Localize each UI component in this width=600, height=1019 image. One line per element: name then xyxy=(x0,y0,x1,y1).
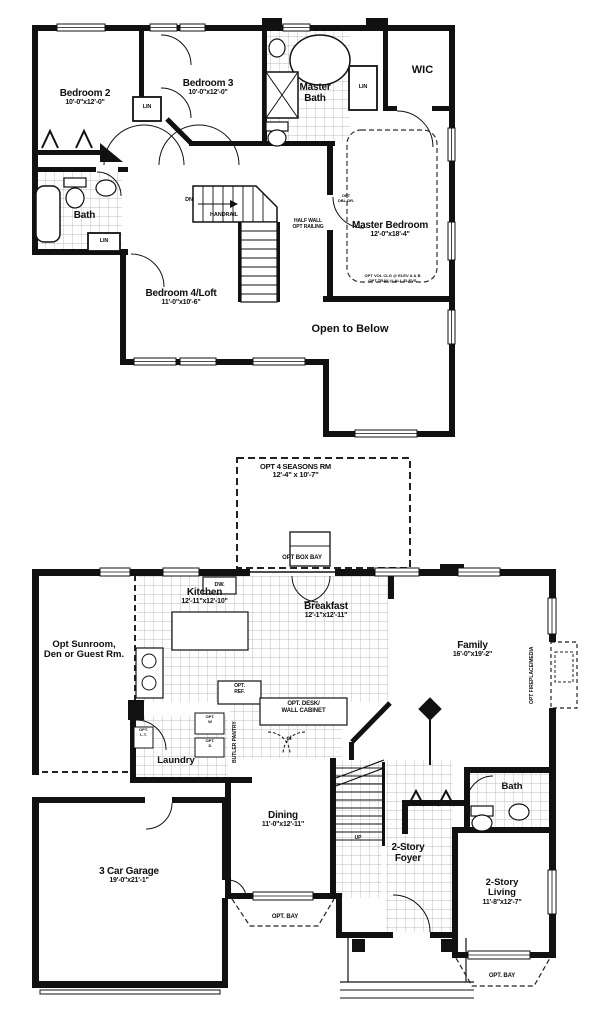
bedroom3-label: Bedroom 3 10'-0"x12'-0" xyxy=(158,78,258,97)
bedroom3-name: Bedroom 3 xyxy=(158,78,258,89)
kitchen-name: Kitchen xyxy=(152,587,257,598)
breakfast-label: Breakfast 12'-1"x12'-11" xyxy=(270,601,382,620)
stairs-up-label: UP xyxy=(350,836,366,842)
opt-washer-line2: W xyxy=(197,720,222,724)
family-name: Family xyxy=(420,640,525,651)
lower-bath-label: Bath xyxy=(492,782,532,792)
bedroom2-label: Bedroom 2 10'-0"x12'-0" xyxy=(35,88,135,107)
linen-closet-label-hall: LIN xyxy=(136,104,158,110)
breakfast-dims: 12'-1"x12'-11" xyxy=(270,612,382,620)
laundry-label: Laundry xyxy=(145,756,207,766)
lower-floor-porch xyxy=(40,938,474,998)
dining-name: Dining xyxy=(233,810,333,821)
floor-plan-page: Bedroom 2 10'-0"x12'-0" Bedroom 3 10'-0"… xyxy=(0,0,600,1019)
opt-desk-wall-cabinet-label: OPT. DESK/ WALL CABINET xyxy=(261,701,346,714)
opt-ref-line2: REF. xyxy=(219,690,260,696)
upper-floor-stairs xyxy=(193,186,277,302)
master-bedroom-dims: 12'-0"x18'-4" xyxy=(330,231,450,239)
opt-4-seasons-dims: 12'-4" x 10'-7" xyxy=(243,471,348,479)
dining-dims: 11'-0"x12'-11" xyxy=(233,821,333,829)
wic-label: WIC xyxy=(400,64,445,76)
ceiling-note-line2: OPT TRAY @ ALL ELEVS xyxy=(350,279,436,283)
bedroom3-dims: 10'-0"x12'-0" xyxy=(158,89,258,97)
opt-washer-label: OPT. W xyxy=(196,715,224,725)
two-story-living-label: 2-Story Living 11'-8"x12'-7" xyxy=(452,878,552,907)
garage-label: 3 Car Garage 19'-0"x21'-1" xyxy=(73,866,185,885)
opt-bay-living-label: OPT. BAY xyxy=(472,973,532,980)
open-to-below-label: Open to Below xyxy=(295,323,405,335)
bedroom4-dims: 11'-0"x10'-6" xyxy=(125,299,237,307)
opt-fireplace-media-label: OPT FIREPLACE/MEDIA xyxy=(530,638,535,712)
master-bedroom-ceiling-note: OPT VOL CLG @ ELEV A & B OPT TRAY @ ALL … xyxy=(345,274,440,284)
opt-4-seasons-label: OPT 4 SEASONS RM 12'-4" x 10'-7" xyxy=(243,463,348,480)
butler-pantry-label: BUTLER PANTRY xyxy=(233,706,238,778)
dining-label: Dining 11'-0"x12'-11" xyxy=(233,810,333,829)
opt-dryer-line2: D xyxy=(197,744,222,748)
kitchen-dims: 12'-11"x12'-10" xyxy=(152,598,257,606)
opt-double-door-label: OPT DBL DR. xyxy=(327,194,365,204)
bedroom2-name: Bedroom 2 xyxy=(35,88,135,99)
half-wall-line2: OPT RAILING xyxy=(282,225,334,231)
opt-desk-line2: WALL CABINET xyxy=(261,708,346,715)
closet-label: cl xyxy=(280,735,298,742)
living-line2: Living xyxy=(452,888,552,898)
family-room-label: Family 16'-0"x19'-2" xyxy=(420,640,525,659)
garage-name: 3 Car Garage xyxy=(73,866,185,877)
bedroom2-dims: 10'-0"x12'-0" xyxy=(35,99,135,107)
linen-closet-label-master-bath: LIN xyxy=(350,84,376,90)
half-wall-label: HALF WALL OPT RAILING xyxy=(282,219,334,230)
upper-bath-label: Bath xyxy=(62,210,107,221)
family-dims: 16'-0"x19'-2" xyxy=(420,651,525,659)
master-bedroom-name: Master Bedroom xyxy=(330,220,450,231)
linen-closet-label-bath: LIN xyxy=(91,238,117,244)
opt-bay-dining-label: OPT. BAY xyxy=(255,914,315,921)
stairs-down-label: DN xyxy=(180,197,198,203)
opt-desk-line1: OPT. DESK/ xyxy=(261,701,346,708)
foyer-line1: 2-Story xyxy=(372,842,444,853)
garage-dims: 19'-0"x21'-1" xyxy=(73,877,185,885)
living-dims: 11'-8"x12'-7" xyxy=(452,899,552,907)
opt-refrigerator-label: OPT. REF. xyxy=(219,684,260,695)
master-bedroom-label: Master Bedroom 12'-0"x18'-4" xyxy=(330,220,450,239)
dishwasher-label: DW. xyxy=(203,582,236,588)
sunroom-line2: Den or Guest Rm. xyxy=(33,650,135,660)
opt-double-door-line2: DBL DR. xyxy=(329,199,363,203)
kitchen-label: Kitchen 12'-11"x12'-10" xyxy=(152,587,257,606)
upper-floor-arch-marks xyxy=(42,131,92,148)
handrail-label: HANDRAIL xyxy=(200,212,248,218)
breakfast-name: Breakfast xyxy=(270,601,382,612)
bedroom4-name: Bedroom 4/Loft xyxy=(125,288,237,299)
foyer-line2: Foyer xyxy=(372,853,444,864)
sunroom-label: Opt Sunroom, Den or Guest Rm. xyxy=(33,640,135,661)
opt-lt-line2: L.T. xyxy=(134,733,153,737)
two-story-foyer-label: 2-Story Foyer xyxy=(372,842,444,864)
master-bath-label: Master Bath xyxy=(288,82,342,104)
opt-box-bay-label: OPT BOX BAY xyxy=(262,555,342,562)
bedroom4-label: Bedroom 4/Loft 11'-0"x10'-6" xyxy=(125,288,237,307)
opt-laundry-tub-label: OPT. L.T. xyxy=(133,728,154,738)
opt-dryer-label: OPT. D xyxy=(196,739,224,749)
